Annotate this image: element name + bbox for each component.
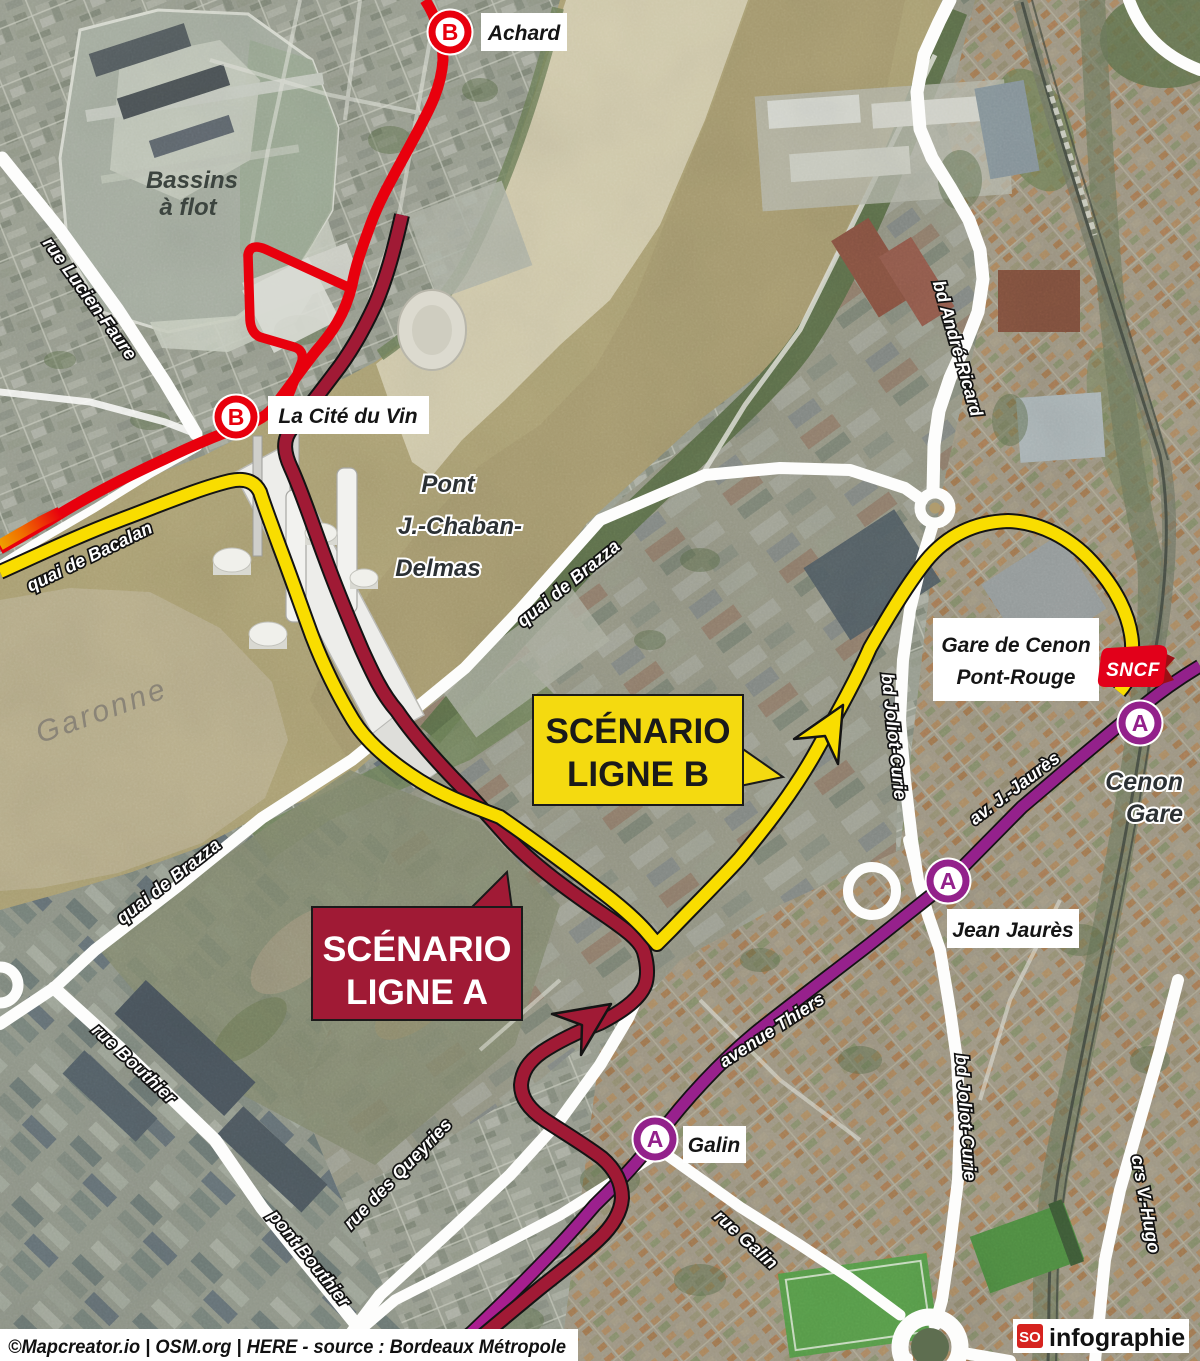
svg-text:Pont-Rouge: Pont-Rouge	[957, 666, 1076, 689]
svg-text:à flot: à flot	[159, 194, 217, 221]
svg-text:SCÉNARIO: SCÉNARIO	[546, 711, 731, 751]
svg-text:Jean Jaurès: Jean Jaurès	[952, 919, 1073, 942]
svg-text:La Cité du Vin: La Cité du Vin	[278, 405, 417, 428]
svg-text:Delmas: Delmas	[395, 555, 480, 582]
svg-text:SO: SO	[1019, 1329, 1041, 1346]
svg-text:Gare: Gare	[1126, 800, 1183, 828]
svg-text:J.-Chaban-: J.-Chaban-	[398, 513, 522, 540]
svg-text:Gare de Cenon: Gare de Cenon	[941, 634, 1090, 657]
svg-text:A: A	[647, 1126, 664, 1152]
svg-text:©Mapcreator.io | OSM.org | HER: ©Mapcreator.io | OSM.org | HERE - source…	[8, 1336, 566, 1358]
svg-text:Achard: Achard	[487, 22, 562, 45]
svg-text:B: B	[442, 19, 459, 45]
svg-text:B: B	[228, 404, 245, 430]
svg-text:A: A	[1132, 710, 1149, 736]
svg-text:LIGNE A: LIGNE A	[346, 973, 488, 1012]
svg-text:SNCF: SNCF	[1106, 660, 1161, 681]
svg-text:SCÉNARIO: SCÉNARIO	[323, 929, 512, 969]
svg-text:A: A	[940, 868, 957, 894]
svg-text:infographie: infographie	[1049, 1324, 1185, 1352]
svg-text:Bassins: Bassins	[146, 167, 238, 194]
svg-text:Cenon: Cenon	[1105, 768, 1183, 796]
svg-text:Galin: Galin	[688, 1134, 741, 1157]
svg-text:LIGNE B: LIGNE B	[567, 755, 709, 794]
svg-text:Pont: Pont	[421, 471, 475, 498]
